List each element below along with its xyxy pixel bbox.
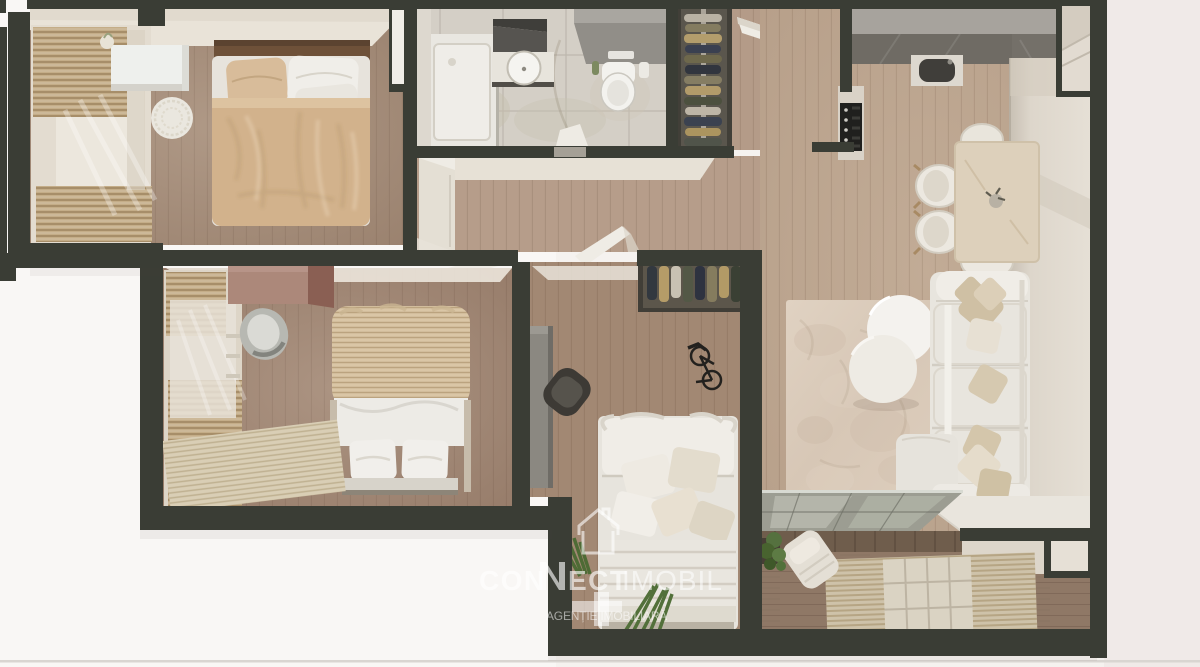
svg-text:ECT: ECT: [568, 565, 629, 596]
svg-text:AGENȚIE IMOBILIARĂ: AGENȚIE IMOBILIARĂ: [546, 608, 667, 623]
svg-text:IMOBIL: IMOBIL: [622, 565, 723, 596]
svg-text:CON: CON: [479, 565, 546, 596]
